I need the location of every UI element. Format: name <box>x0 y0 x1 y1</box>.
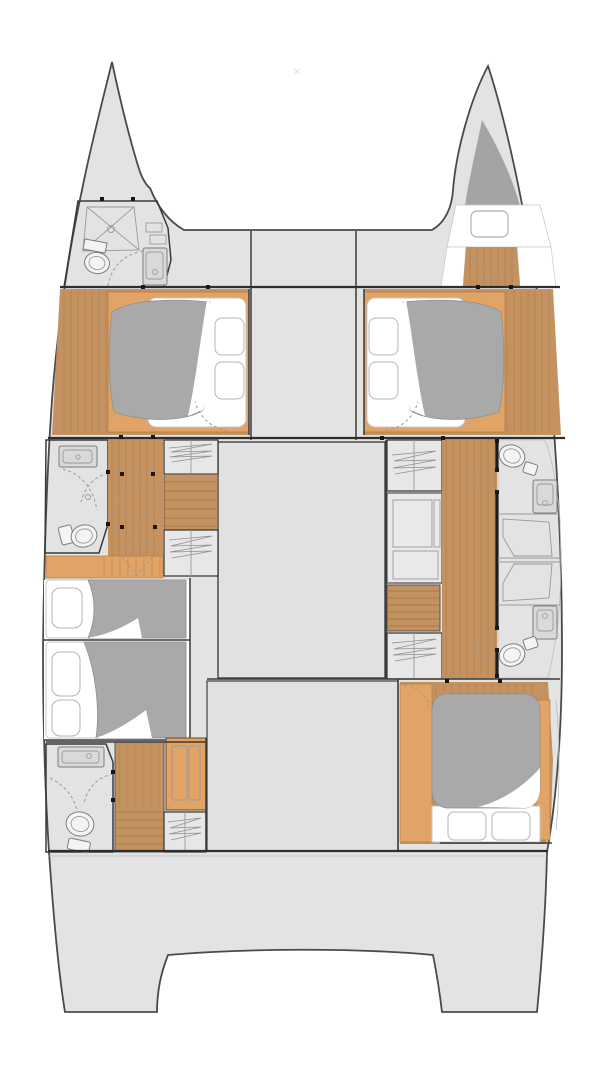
pillow <box>448 812 486 840</box>
pillow <box>492 812 530 840</box>
sink-vanity <box>59 446 97 467</box>
side-berth-trim <box>400 684 432 842</box>
door-post <box>111 770 115 774</box>
door-post <box>509 285 513 289</box>
door-post <box>120 472 124 476</box>
door-post <box>151 435 155 439</box>
pillow <box>52 652 80 696</box>
door-post <box>106 470 110 474</box>
door-post <box>495 439 499 443</box>
door-post <box>476 285 480 289</box>
stair-landing <box>115 742 164 852</box>
door-post <box>441 436 445 440</box>
pillow <box>215 362 244 399</box>
door-post <box>153 525 157 529</box>
door-post <box>495 490 499 494</box>
door-post <box>100 197 104 201</box>
door-post <box>445 679 449 683</box>
door-post <box>498 679 502 683</box>
door-post <box>495 674 499 678</box>
door-post <box>495 468 499 472</box>
port-aft-cabins <box>44 578 190 742</box>
aft-deck-block <box>207 681 398 851</box>
catamaran-floorplan: × <box>0 0 608 1080</box>
port-forward-cabin <box>52 289 249 435</box>
starboard-aft-cabin <box>398 679 559 852</box>
door-post <box>495 648 499 652</box>
pillow <box>52 588 82 628</box>
door-post <box>131 197 135 201</box>
sink-vanity <box>58 747 104 767</box>
salon-deck-block <box>218 442 385 678</box>
close-icon: × <box>292 65 301 78</box>
starboard-forward-cabin <box>364 289 561 435</box>
door-post <box>380 436 384 440</box>
door-post <box>141 285 145 289</box>
pillow <box>215 318 244 355</box>
deck-hatch <box>471 211 508 237</box>
door-post <box>106 522 110 526</box>
door-post <box>151 472 155 476</box>
hanging-locker <box>387 440 442 491</box>
corridor-floor <box>442 438 497 679</box>
door-post <box>119 435 123 439</box>
door-post <box>206 285 210 289</box>
door-post <box>495 626 499 630</box>
door-post <box>111 798 115 802</box>
pillow <box>52 700 80 736</box>
bow-flank-right <box>517 247 556 287</box>
companionway-stairs <box>387 585 440 631</box>
shelf-band <box>46 556 163 578</box>
floorplan-canvas: × <box>0 0 608 1080</box>
door-post <box>120 525 124 529</box>
